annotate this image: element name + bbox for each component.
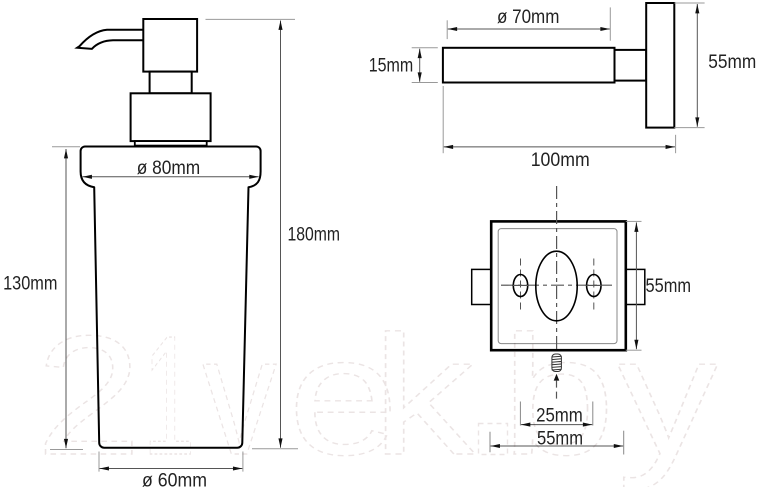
- svg-text:v: v: [202, 301, 276, 487]
- svg-text:130mm: 130mm: [3, 273, 57, 294]
- svg-text:ø 80mm: ø 80mm: [137, 158, 201, 179]
- svg-text:55mm: 55mm: [646, 276, 692, 297]
- svg-text:k: k: [372, 301, 476, 487]
- svg-text:2: 2: [36, 301, 141, 487]
- svg-text:b: b: [501, 300, 615, 487]
- svg-text:15mm: 15mm: [369, 55, 414, 76]
- svg-text:1: 1: [143, 302, 195, 487]
- svg-text:y: y: [617, 300, 718, 487]
- svg-text:180mm: 180mm: [288, 225, 341, 246]
- svg-text:ø 70mm: ø 70mm: [497, 7, 559, 28]
- svg-text:55mm: 55mm: [708, 52, 756, 73]
- svg-text:100mm: 100mm: [531, 150, 590, 171]
